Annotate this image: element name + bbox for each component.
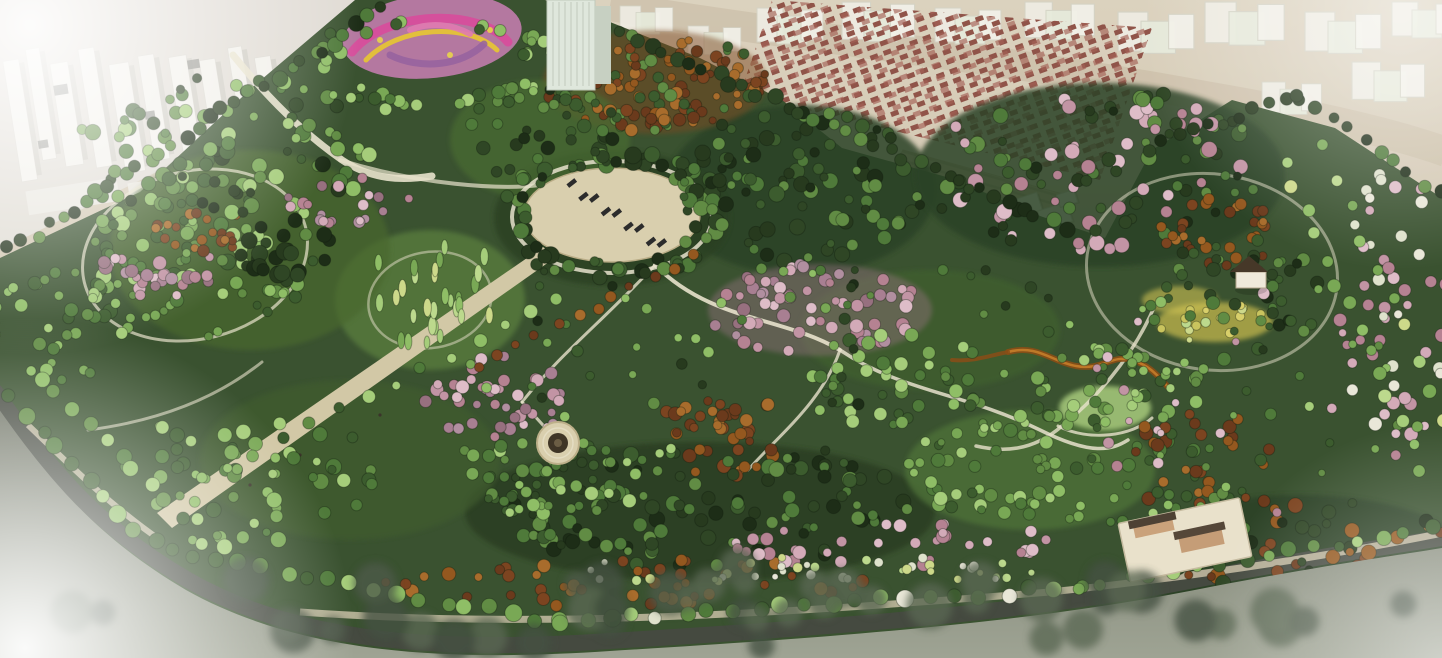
park-masterplan-aerial-rendering <box>0 0 1442 658</box>
fog-overlays <box>0 0 1442 658</box>
park-aerial-scene <box>0 0 1442 658</box>
